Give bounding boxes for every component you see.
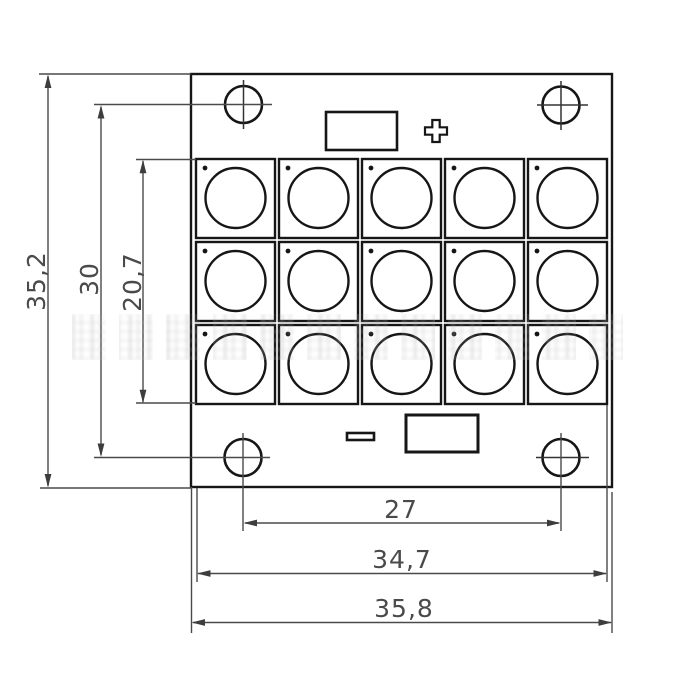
led-cell — [362, 242, 441, 321]
led-cell — [528, 242, 607, 321]
cell-corner-dot — [203, 166, 208, 171]
led-cell — [279, 159, 358, 238]
board-outline-group — [191, 74, 612, 487]
arrow-right-overall-width — [599, 619, 613, 626]
cell-corner-dot — [286, 249, 291, 254]
cell-corner-dot — [286, 166, 291, 171]
cell-corner-dot — [452, 166, 457, 171]
arrow-right-inner-width — [594, 570, 608, 577]
arrow-down-led-array-height — [140, 390, 147, 404]
inner-width-label: 34,7 — [372, 545, 432, 574]
cell-corner-dot — [369, 249, 374, 254]
overall-height-label: 35,2 — [22, 251, 51, 311]
arrow-left-inner-width — [197, 570, 211, 577]
cell-corner-dot — [203, 332, 208, 337]
technical-drawing-canvas: 35,2 30 20,7 27 34,7 35,8 — [0, 0, 700, 678]
led-lens — [455, 168, 515, 228]
cell-corner-dot — [286, 332, 291, 337]
cell-corner-dot — [369, 332, 374, 337]
board-outline — [191, 74, 612, 487]
led-cell — [196, 159, 275, 238]
led-cell — [362, 325, 441, 404]
arrow-down-overall-height — [45, 474, 52, 488]
dimension-drawing-svg: 35,2 30 20,7 27 34,7 35,8 — [0, 0, 700, 678]
led-cell — [279, 325, 358, 404]
led-cell — [445, 242, 524, 321]
cell-corner-dot — [203, 249, 208, 254]
led-cell — [528, 159, 607, 238]
minus-polarity-icon — [347, 433, 374, 440]
led-lens — [372, 168, 432, 228]
led-cell — [279, 242, 358, 321]
cell-corner-dot — [369, 166, 374, 171]
led-lens — [206, 334, 266, 394]
arrow-left-hole-spacing-h — [244, 520, 258, 527]
led-cell — [362, 159, 441, 238]
led-cell — [196, 325, 275, 404]
led-lens — [289, 251, 349, 311]
led-cell — [196, 242, 275, 321]
led-lens — [206, 168, 266, 228]
led-array-height-label: 20,7 — [118, 252, 147, 312]
led-lens — [538, 251, 598, 311]
led-lens — [289, 168, 349, 228]
hole-spacing-h-label: 27 — [384, 495, 418, 524]
hole-crosshairs — [244, 80, 590, 458]
cell-corner-dot — [452, 332, 457, 337]
arrow-down-hole-spacing-v — [98, 444, 105, 458]
hole-spacing-v-label: 30 — [75, 262, 104, 296]
led-cell — [528, 325, 607, 404]
bottom-connector-pad — [406, 415, 478, 452]
led-lens — [538, 334, 598, 394]
cell-corner-dot — [452, 249, 457, 254]
cell-corner-dot — [535, 166, 540, 171]
cell-corner-dot — [535, 249, 540, 254]
led-lens — [455, 334, 515, 394]
led-lens — [372, 251, 432, 311]
arrow-up-hole-spacing-v — [98, 105, 105, 119]
cell-corner-dot — [535, 332, 540, 337]
led-lens — [289, 334, 349, 394]
led-cell — [445, 325, 524, 404]
mounting-holes — [225, 86, 580, 476]
led-lens — [372, 334, 432, 394]
arrow-right-hole-spacing-h — [547, 520, 561, 527]
arrow-up-led-array-height — [140, 160, 147, 174]
led-lens — [538, 168, 598, 228]
led-grid — [196, 159, 607, 404]
arrow-up-overall-height — [45, 75, 52, 89]
led-lens — [455, 251, 515, 311]
overall-width-label: 35,8 — [374, 594, 434, 623]
top-connector-pad — [326, 112, 397, 150]
led-cell — [445, 159, 524, 238]
arrow-left-overall-width — [192, 619, 206, 626]
plus-polarity-icon — [425, 120, 447, 142]
led-lens — [206, 251, 266, 311]
